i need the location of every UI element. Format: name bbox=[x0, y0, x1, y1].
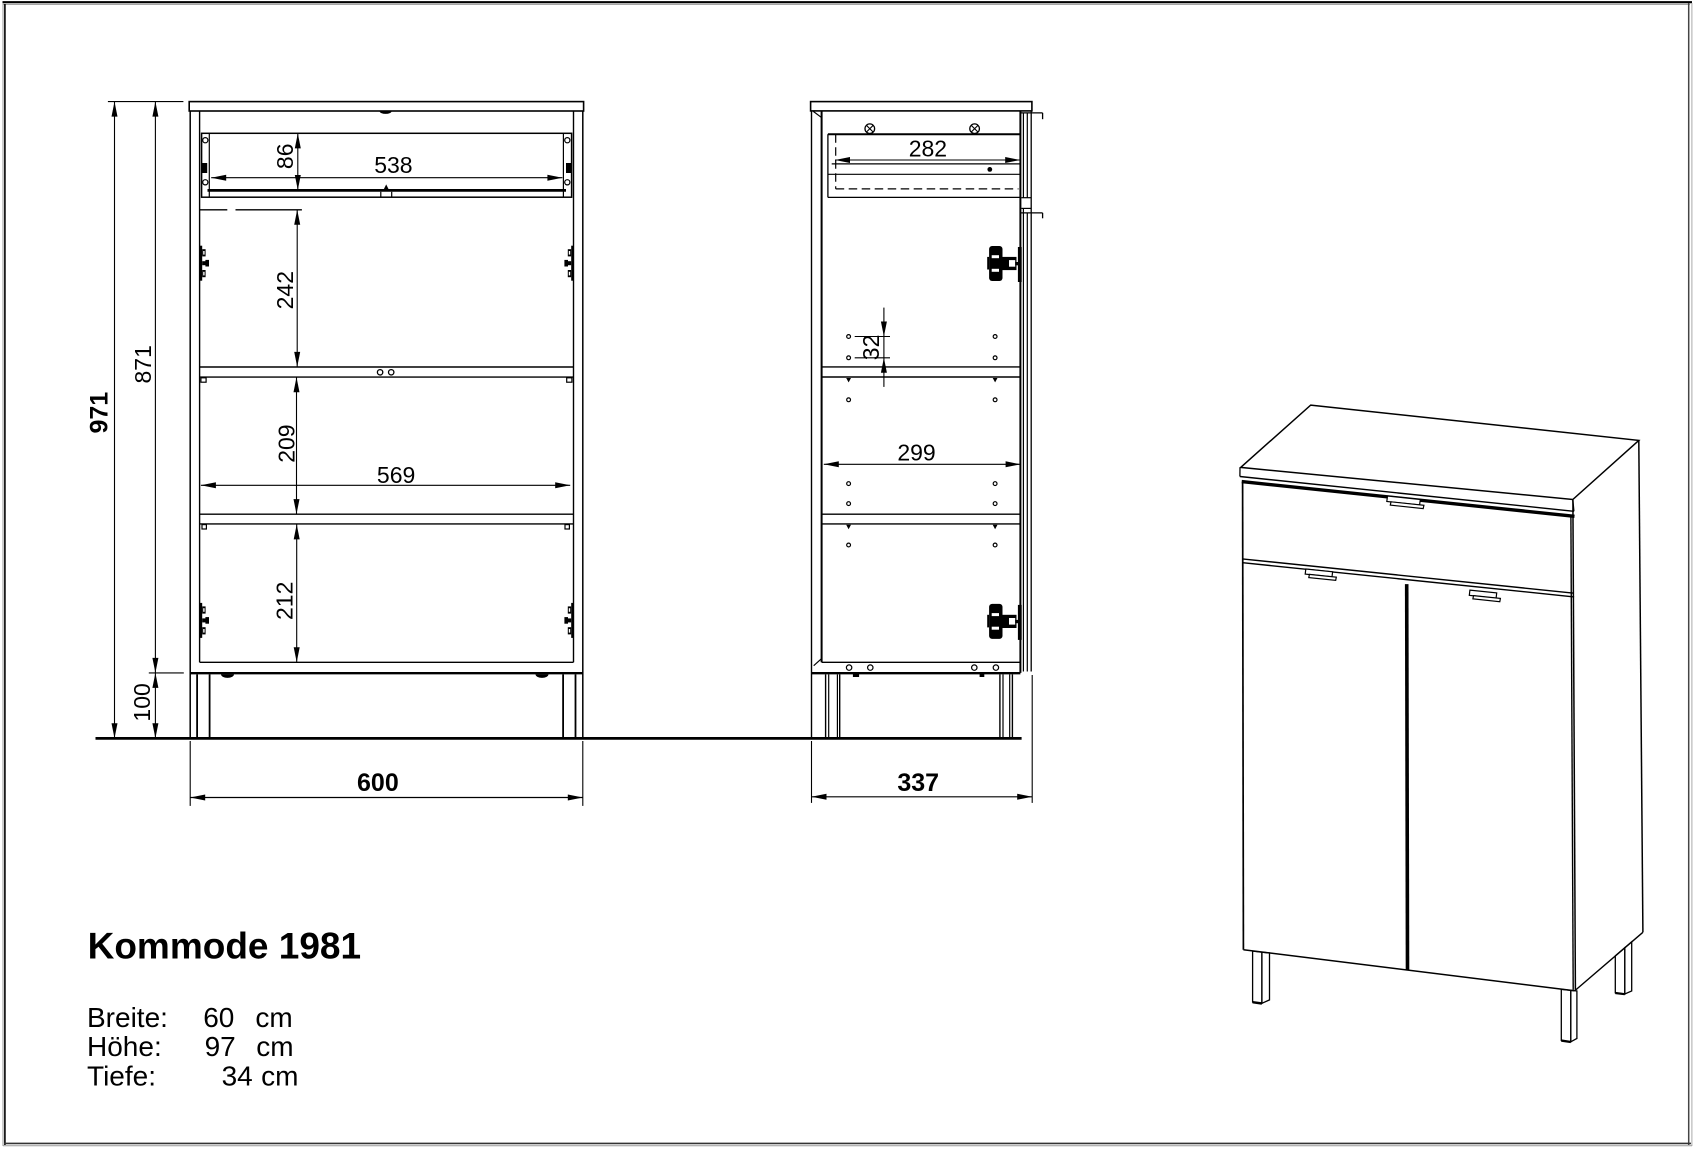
svg-text:Tiefe:: Tiefe: bbox=[87, 1061, 156, 1092]
svg-text:97: 97 bbox=[205, 1031, 236, 1062]
svg-text:871: 871 bbox=[130, 345, 156, 383]
svg-text:569: 569 bbox=[377, 462, 415, 488]
svg-text:282: 282 bbox=[909, 136, 947, 162]
svg-text:538: 538 bbox=[374, 152, 412, 178]
svg-text:209: 209 bbox=[273, 424, 299, 462]
svg-text:Höhe:: Höhe: bbox=[87, 1031, 162, 1062]
svg-text:cm: cm bbox=[261, 1061, 298, 1092]
svg-text:86: 86 bbox=[272, 144, 298, 170]
svg-text:cm: cm bbox=[255, 1002, 292, 1033]
svg-text:600: 600 bbox=[357, 769, 399, 797]
svg-text:Kommode 1981: Kommode 1981 bbox=[88, 926, 362, 967]
svg-text:Breite:: Breite: bbox=[87, 1002, 168, 1033]
svg-text:242: 242 bbox=[272, 271, 298, 309]
svg-text:212: 212 bbox=[271, 582, 297, 620]
svg-text:299: 299 bbox=[897, 440, 935, 466]
svg-text:32: 32 bbox=[858, 335, 884, 361]
svg-text:60: 60 bbox=[203, 1002, 234, 1033]
svg-text:100: 100 bbox=[129, 683, 155, 721]
svg-text:34: 34 bbox=[222, 1061, 253, 1092]
svg-text:971: 971 bbox=[85, 392, 113, 434]
svg-text:337: 337 bbox=[897, 769, 939, 797]
svg-text:cm: cm bbox=[256, 1031, 293, 1062]
